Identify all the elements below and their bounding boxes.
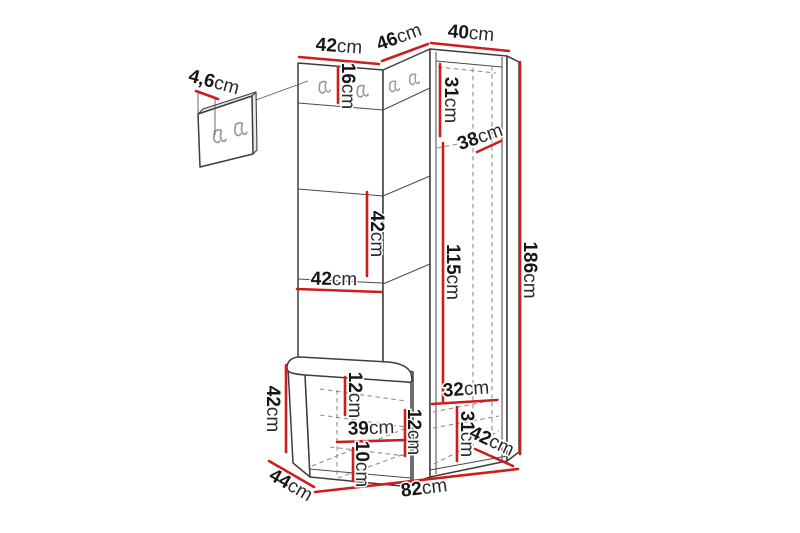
label-left-panel-width: 42cm <box>311 268 358 290</box>
label-bench-bottom-inner-height: 10cm <box>352 441 373 487</box>
label-left-middle-section-height: 42cm <box>367 211 388 257</box>
label-bench-right-inner-height: 12cm <box>404 409 425 455</box>
dimension-diagram-page: 4,6cm 42cm 46cm 40cm 16cm 31cm 38cm 115c… <box>0 0 800 533</box>
label-right-door-opening-height: 115cm <box>443 244 464 300</box>
label-right-upper-inner-height: 31cm <box>441 77 462 123</box>
label-hook-rail-height: 16cm <box>338 63 359 109</box>
small-panel-front <box>198 96 253 167</box>
label-total-height: 186cm <box>520 241 541 298</box>
label-top-left-width: 42cm <box>315 34 363 58</box>
hallway-unit-dimension-diagram: 4,6cm 42cm 46cm 40cm 16cm 31cm 38cm 115c… <box>0 0 800 533</box>
label-right-bottom-inner-width: 32cm <box>442 377 490 401</box>
label-panel-thickness: 4,6cm <box>186 65 241 99</box>
small-hook-panel <box>198 81 308 167</box>
label-bench-height: 42cm <box>263 386 284 432</box>
wardrobe-side-face <box>507 56 519 461</box>
label-total-width: 82cm <box>400 475 449 502</box>
label-bench-inner-width: 39cm <box>347 417 394 440</box>
label-top-right-width: 40cm <box>447 21 495 46</box>
label-bench-top-inner-height: 12cm <box>345 372 366 418</box>
